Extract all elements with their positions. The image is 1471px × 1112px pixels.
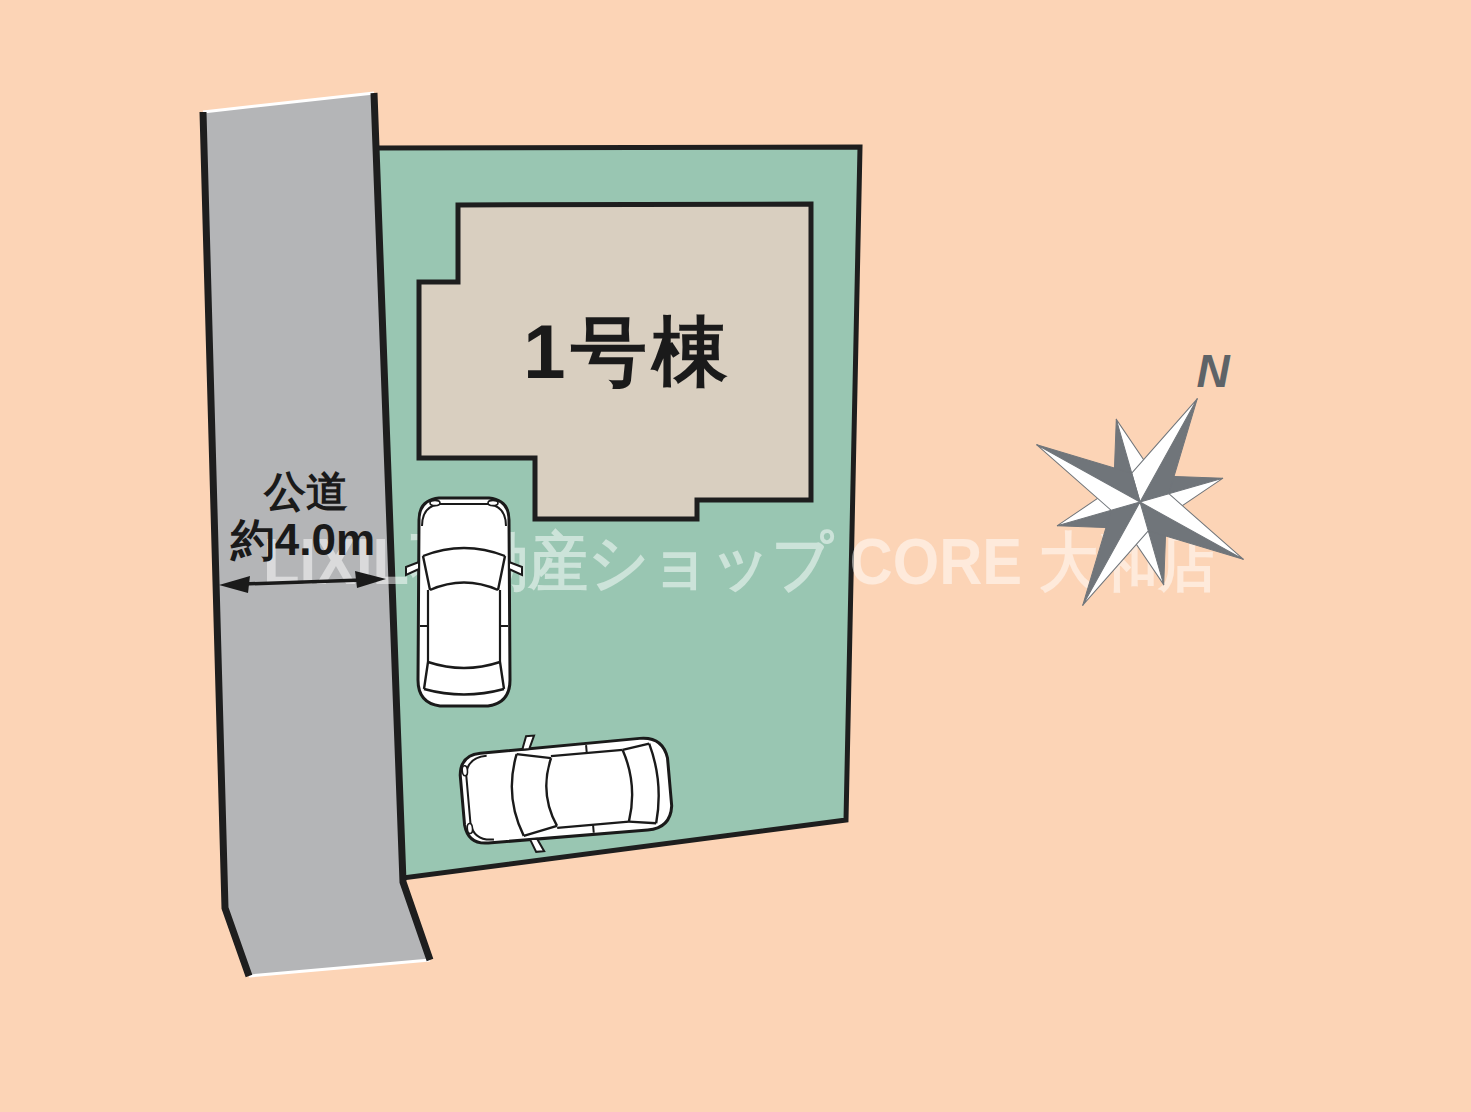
building-label: 1号棟 — [523, 314, 732, 390]
road-width-label: 約4.0m — [231, 518, 375, 562]
site-plan-canvas: LIXIL不動産ショップ CORE 大和店 — [0, 0, 1471, 1112]
watermark-text: LIXIL不動産ショップ CORE 大和店 — [263, 526, 1218, 598]
compass-star-icon — [980, 342, 1301, 663]
site-plan-drawing: LIXIL不動産ショップ CORE 大和店 — [0, 0, 1471, 1112]
car-top-view-1 — [406, 498, 522, 706]
road-name-label: 公道 — [264, 471, 348, 513]
compass-rose — [980, 342, 1301, 663]
north-label: N — [1196, 348, 1229, 394]
